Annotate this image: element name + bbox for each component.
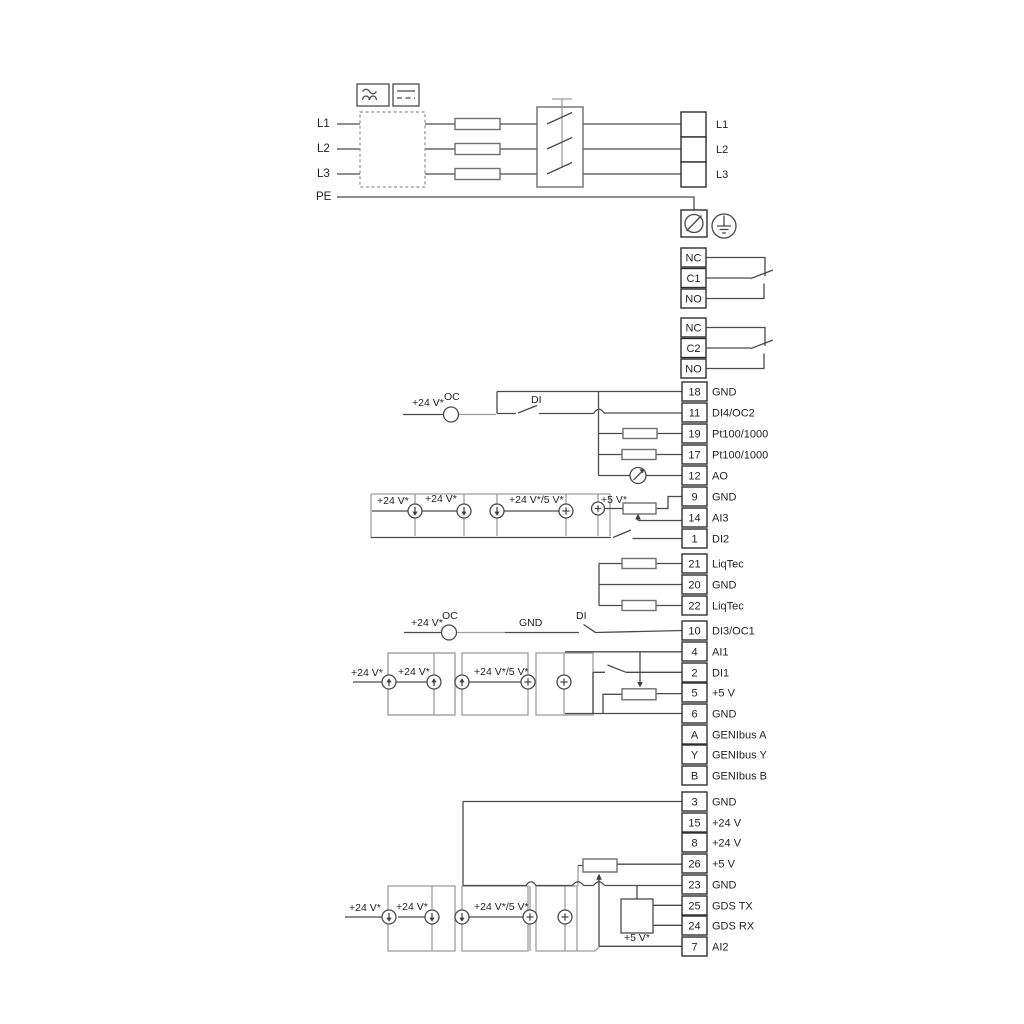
- relay2-pin: NC: [686, 323, 702, 335]
- relay2-pin: C2: [686, 343, 700, 355]
- potentiometer-icon: [622, 689, 656, 700]
- liqtec-group: 21 20 22 LiqTec GND LiqTec: [599, 554, 744, 615]
- terminal-pin: A: [691, 729, 699, 741]
- terminal-pin: B: [691, 770, 698, 782]
- terminal-label: DI2: [712, 533, 729, 545]
- main-switch-box: [537, 107, 583, 187]
- io-group-3: +24 V* OC GND DI +24 V* +24 V* +24 V*/5 …: [351, 610, 767, 785]
- annotation: OC: [444, 391, 460, 403]
- wiper-arrow-up: [596, 874, 602, 880]
- power-out-label: L3: [716, 169, 728, 181]
- option-box: [462, 886, 528, 951]
- terminal-label: +24 V: [712, 817, 742, 829]
- relay1-contact-icon: [706, 258, 773, 299]
- option-box: [388, 886, 455, 951]
- terminal-pin: 6: [691, 708, 697, 720]
- terminal-pin: 15: [688, 817, 700, 829]
- annotation: +24 V*: [377, 495, 409, 507]
- annotation: +24 V*: [425, 493, 457, 505]
- terminal-pin: 18: [688, 386, 700, 398]
- open-collector-icon: [444, 407, 459, 422]
- open-collector-icon: [442, 625, 457, 640]
- terminal-pin: 25: [688, 900, 700, 912]
- option-box-rails: [371, 415, 610, 538]
- annotation: DI: [531, 394, 542, 406]
- liqtec-sensor-icon: [622, 559, 656, 569]
- fuse-icon: [455, 119, 500, 130]
- option-box: [388, 653, 455, 715]
- annotation: +24 V*/5 V*: [474, 901, 529, 913]
- annotation: +24 V*: [412, 397, 444, 409]
- terminal-pin: 8: [691, 837, 697, 849]
- terminal-pin: 23: [688, 879, 700, 891]
- potentiometer-icon: [623, 503, 656, 514]
- terminal-cell: [681, 112, 706, 137]
- terminal-label: AI2: [712, 941, 729, 953]
- io-group-1: +24 V* OC DI +24 V* +24 V* +24 V*/5 V* +…: [371, 382, 768, 548]
- wiring-diagram: L1 L2 L3 PE L1 L2 L3 NC C1 NO NC C2 NO: [0, 0, 1024, 1024]
- terminal-pin: 7: [691, 941, 697, 953]
- terminal-pin: 21: [688, 558, 700, 570]
- liqtec-wires: [599, 564, 682, 606]
- terminal-label: LiqTec: [712, 558, 744, 570]
- terminal-pin: 26: [688, 858, 700, 870]
- annotation: +24 V*: [398, 666, 430, 678]
- fuse-icon: [455, 144, 500, 155]
- power-out-label: L2: [716, 144, 728, 156]
- terminal-pin: 3: [691, 796, 697, 808]
- annotation: OC: [442, 610, 458, 622]
- terminal-label: GDS RX: [712, 920, 755, 932]
- terminal-pin: 12: [688, 470, 700, 482]
- terminal-label: +24 V: [712, 837, 742, 849]
- power-section: L1 L2 L3 PE L1 L2 L3: [316, 84, 736, 238]
- power-in-label: L1: [317, 118, 330, 130]
- wiper-arrow-down: [637, 682, 643, 688]
- io-group-4: +24 V* +24 V* +24 V*/5 V* +5 V* 3 15 8 2…: [345, 792, 755, 956]
- terminal-label: GENIbus A: [712, 729, 767, 741]
- relay2-pin: NO: [685, 364, 702, 376]
- annotation: +24 V*: [396, 901, 428, 913]
- terminal-label: GDS TX: [712, 900, 753, 912]
- relay-outputs: NC C1 NO NC C2 NO: [681, 248, 773, 378]
- power-in-label: L3: [317, 168, 330, 180]
- terminal-cell: [681, 137, 706, 162]
- wiring-diagram-page: L1 L2 L3 PE L1 L2 L3 NC C1 NO NC C2 NO: [0, 0, 1024, 1024]
- terminal-pin: 22: [688, 600, 700, 612]
- terminal-label: GENIbus Y: [712, 749, 767, 761]
- terminal-label: LiqTec: [712, 600, 744, 612]
- terminal-pin: 24: [688, 920, 700, 932]
- emc-filter-box: [360, 112, 425, 187]
- terminal-pin: 2: [691, 667, 697, 679]
- terminal-pin: 1: [691, 533, 697, 545]
- power-out-label: L1: [716, 119, 728, 131]
- terminal-label: GENIbus B: [712, 770, 767, 782]
- terminal-label: Pt100/1000: [712, 428, 768, 440]
- gds-sensor-box: [621, 899, 653, 933]
- terminal-label: +5 V: [712, 687, 736, 699]
- terminal-pin: 11: [689, 407, 700, 419]
- relay1-pin: NO: [685, 294, 702, 306]
- terminal-pin: 5: [691, 687, 697, 699]
- terminal-cell: [681, 162, 706, 187]
- power-in-label: L2: [317, 143, 330, 155]
- terminal-label: DI4/OC2: [712, 407, 755, 419]
- terminal-label: GND: [712, 386, 737, 398]
- pt100-resistor-icon: [623, 429, 657, 439]
- annotation: +5 V*: [601, 494, 627, 506]
- potentiometer-icon: [583, 859, 617, 872]
- terminal-pin: 10: [688, 625, 700, 637]
- terminal-pin: 19: [688, 428, 700, 440]
- terminal-pin: 17: [688, 449, 700, 461]
- option-box: [462, 653, 528, 715]
- annotation: +24 V*: [351, 667, 383, 679]
- terminal-label: GND: [712, 708, 737, 720]
- annotation: +24 V*: [411, 617, 443, 629]
- terminal-pin: Y: [691, 749, 699, 761]
- dc-symbol-box: [393, 84, 419, 106]
- terminal-label: AO: [712, 470, 728, 482]
- annotation: +24 V*: [349, 902, 381, 914]
- pt100-resistor-icon: [622, 450, 656, 460]
- terminal-label: GND: [712, 879, 737, 891]
- terminal-pin: 9: [691, 491, 697, 503]
- relay2-contact-icon: [706, 328, 773, 369]
- liqtec-sensor-icon: [622, 601, 656, 611]
- terminal-pin: 14: [688, 512, 700, 524]
- annotation: GND: [519, 617, 543, 629]
- annotation: +24 V*/5 V*: [474, 666, 529, 678]
- terminal-label: AI1: [712, 646, 729, 658]
- relay1-pin: C1: [686, 273, 700, 285]
- terminal-label: +5 V: [712, 858, 736, 870]
- terminal-label: AI3: [712, 512, 729, 524]
- annotation: +24 V*/5 V*: [509, 494, 564, 506]
- power-in-label: PE: [316, 191, 332, 203]
- terminal-label: DI3/OC1: [712, 625, 755, 637]
- annotation: +5 V*: [624, 932, 650, 944]
- annotation: DI: [576, 610, 587, 622]
- terminal-label: GND: [712, 579, 737, 591]
- terminal-strip-1: 18 11 19 17 12 9 14 1 GND DI4/OC2 Pt100/…: [682, 382, 768, 548]
- terminal-pin: 20: [688, 579, 700, 591]
- terminal-label: GND: [712, 491, 737, 503]
- terminal-label: Pt100/1000: [712, 449, 768, 461]
- terminal-strip-4: 3 15 8 26 23 25 24 7 GND +24 V +24 V +5 …: [682, 792, 755, 956]
- terminal-strip-3: 10 4 2 5 6 A Y B DI3/OC1 AI1 DI1 +5 V GN…: [682, 621, 767, 785]
- terminal-pin: 4: [691, 646, 697, 658]
- terminal-label: GND: [712, 796, 737, 808]
- ac-symbol-box: [357, 84, 389, 106]
- terminal-label: DI1: [712, 667, 729, 679]
- relay1-pin: NC: [686, 253, 702, 265]
- fuse-icon: [455, 169, 500, 180]
